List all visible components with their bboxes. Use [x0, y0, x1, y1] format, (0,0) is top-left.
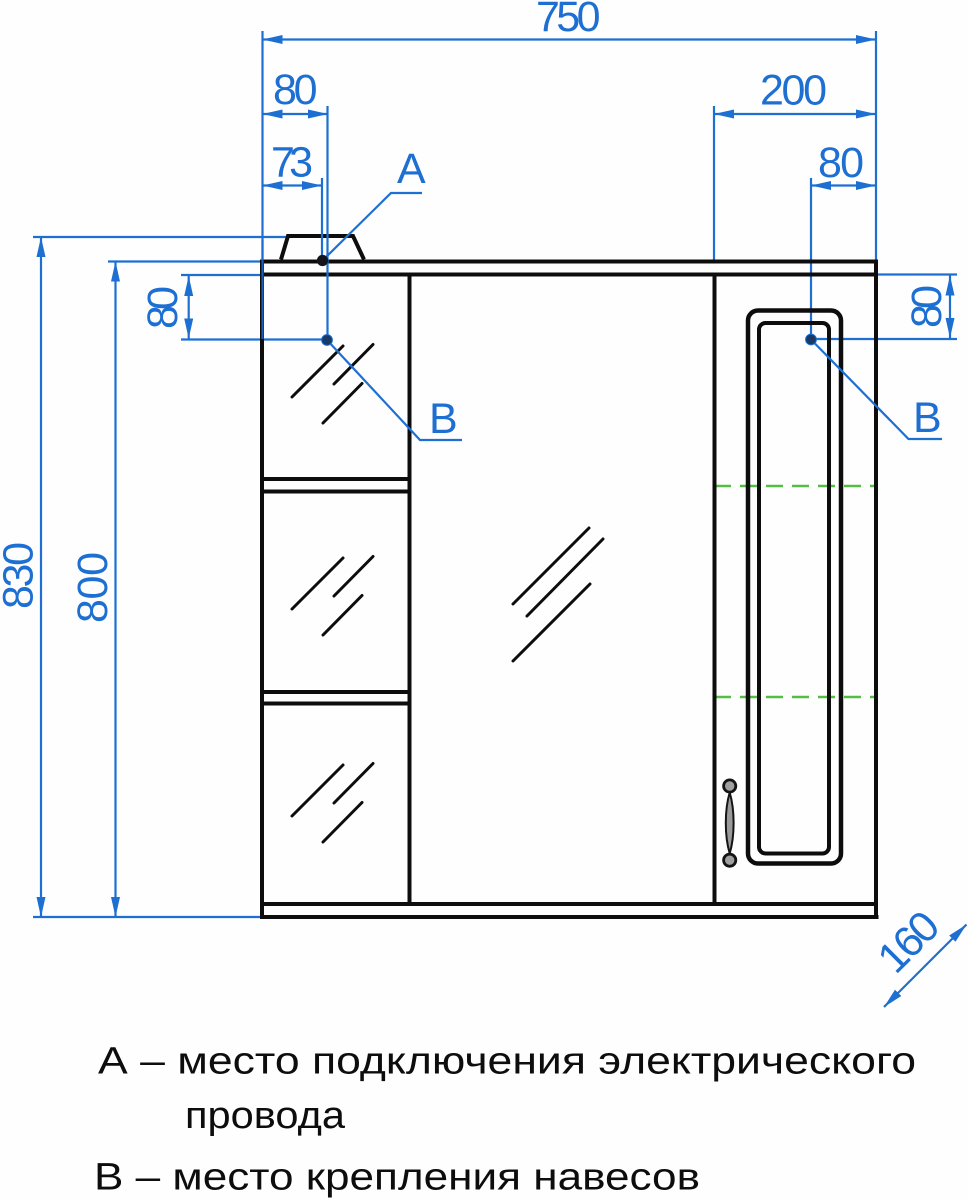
svg-text:800: 800	[69, 552, 117, 623]
svg-text:830: 830	[0, 542, 43, 609]
svg-text:В – место крепления навесов: В – место крепления навесов	[94, 1157, 700, 1199]
svg-text:80: 80	[903, 285, 951, 328]
svg-text:750: 750	[536, 0, 601, 41]
svg-text:80: 80	[273, 66, 318, 114]
svg-text:80: 80	[818, 139, 864, 187]
svg-text:B: B	[429, 395, 458, 443]
svg-text:провода: провода	[185, 1095, 346, 1137]
svg-text:А – место подключения электрич: А – место подключения электрического	[98, 1041, 916, 1083]
svg-text:A: A	[397, 145, 426, 193]
svg-text:B: B	[913, 394, 942, 442]
svg-text:200: 200	[760, 67, 827, 115]
svg-text:80: 80	[139, 286, 187, 329]
svg-text:73: 73	[271, 139, 313, 187]
